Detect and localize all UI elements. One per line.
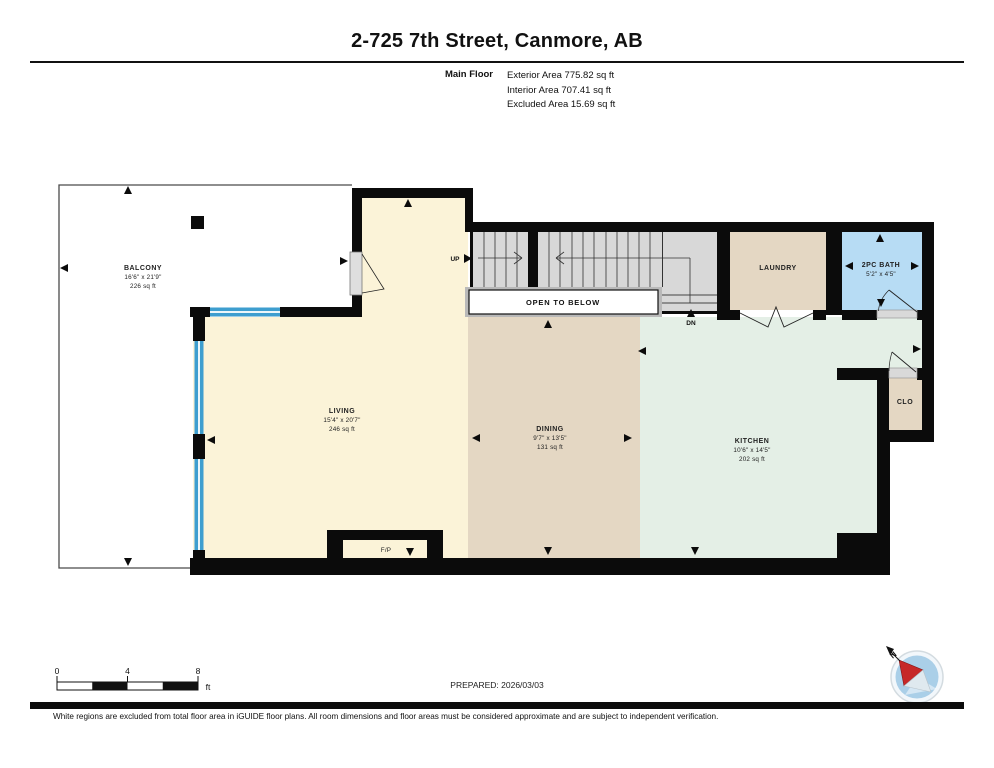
balcony-area: 226 sq ft xyxy=(130,283,156,290)
living-area: 246 sq ft xyxy=(329,426,355,433)
kitchen-area: 202 sq ft xyxy=(739,456,765,463)
prepared-date: PREPARED: 2026/03/03 xyxy=(0,680,994,690)
balcony-label: BALCONY xyxy=(124,265,162,272)
north-compass-icon: N xyxy=(886,646,943,703)
scale-8: 8 xyxy=(196,666,201,676)
dining-dims: 9'7" x 13'5" xyxy=(533,435,566,442)
kitchen-label: KITCHEN xyxy=(735,438,770,445)
bath-label: 2PC BATH xyxy=(862,262,900,269)
closet-label: CLO xyxy=(897,399,913,406)
balcony-dims: 16'6" x 21'9" xyxy=(124,274,161,281)
balcony-post xyxy=(191,216,204,229)
footer-divider xyxy=(30,702,964,709)
disclaimer-text: White regions are excluded from total fl… xyxy=(53,712,813,721)
scale-0: 0 xyxy=(55,666,60,676)
up-label: UP xyxy=(450,256,460,263)
bath-dims: 5'2" x 4'5" xyxy=(866,271,896,278)
window-icon xyxy=(210,308,280,317)
open-to-below-box: OPEN TO BELOW xyxy=(465,287,662,317)
window-icon xyxy=(195,341,204,434)
living-dims: 15'4" x 20'7" xyxy=(323,417,360,424)
kitchen-dims: 10'6" x 14'5" xyxy=(733,447,770,454)
living-label: LIVING xyxy=(329,408,355,415)
scale-4: 4 xyxy=(125,666,130,676)
laundry-label: LAUNDRY xyxy=(759,265,796,272)
floor-plan-svg: F/P xyxy=(0,0,994,768)
fireplace: F/P xyxy=(327,530,443,560)
dn-label: DN xyxy=(686,320,696,327)
open-to-below-label: OPEN TO BELOW xyxy=(526,298,600,307)
window-icon xyxy=(195,459,204,550)
dining-label: DINING xyxy=(536,426,564,433)
dining-area: 131 sq ft xyxy=(537,444,563,451)
living-room-floor xyxy=(193,198,468,558)
fireplace-label: F/P xyxy=(381,547,391,554)
floor-plan-page: 2-725 7th Street, Canmore, AB Main Floor… xyxy=(0,0,994,768)
